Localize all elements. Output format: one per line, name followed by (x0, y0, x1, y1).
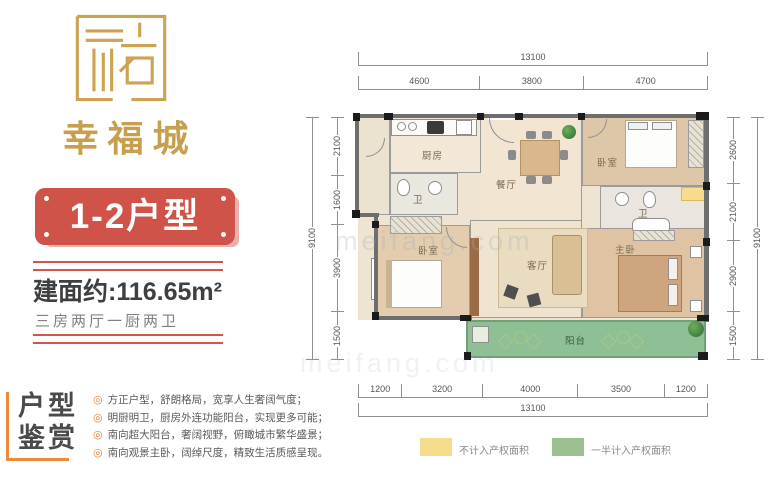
list-item: ◎ 南向观景主卧，阔绰尺度，精致生活质感呈现。 (93, 445, 328, 463)
list-item: ◎ 南向超大阳台，奢阔视野，俯瞰城市繁华盛景； (93, 427, 328, 445)
dim-right-segments: 2600 2100 2900 1500 (727, 117, 740, 360)
brand-logo-icon (66, 6, 176, 110)
chair-icon (508, 150, 516, 160)
banner-dot (221, 196, 226, 201)
promo-sheet: 幸福城 1-2户型 建面约:116.65m² 三房两厅一厨两卫 户型 鉴赏 ◎ … (0, 0, 770, 500)
dim-left-total: 9100 (306, 117, 319, 360)
wall-bottom-left (374, 316, 472, 320)
wall-right (704, 114, 709, 322)
wall-block (460, 315, 471, 321)
nightstand-icon (690, 300, 702, 312)
label-bath-2: 卫 (638, 206, 649, 220)
stove-icon (427, 121, 444, 134)
banner-dot (221, 232, 226, 237)
banner-dot (44, 232, 49, 237)
unit-type-banner: 1-2户型 (35, 188, 235, 245)
label-living: 客厅 (527, 258, 548, 272)
wall-block (698, 352, 708, 360)
red-divider (33, 261, 223, 271)
legend-label-half-counted: 一半计入产权面积 (591, 442, 671, 457)
washbasin-icon (428, 181, 442, 195)
wall-block (697, 315, 709, 321)
unit-type-label: 1-2户型 (35, 188, 235, 245)
watermark: meifang.com (300, 348, 499, 379)
kitchen-sink-icon (397, 122, 406, 131)
wardrobe-bedroom-1 (688, 120, 704, 168)
wall-block (703, 238, 710, 246)
legend-swatch-not-counted (420, 438, 452, 456)
wall-top (356, 114, 708, 118)
label-kitchen: 厨房 (422, 148, 443, 162)
label-dining: 餐厅 (496, 177, 517, 191)
dim-bottom-total: 13100 (358, 403, 708, 417)
label-bedroom-1: 卧室 (597, 155, 618, 169)
chair-icon (542, 176, 552, 184)
washbasin-icon (615, 192, 629, 206)
watermark: meifang.com (335, 226, 534, 257)
plant-icon (562, 125, 576, 139)
balcony-decor (514, 331, 527, 344)
toilet-icon (397, 179, 410, 196)
bed-bedroom-2 (386, 260, 442, 308)
legend-swatch-half-counted (552, 438, 584, 456)
dim-bottom-segments: 1200 3200 4000 3500 1200 (358, 384, 708, 398)
layout-summary: 三房两厅一厨两卫 (35, 310, 179, 331)
wardrobe-master (633, 230, 675, 241)
wall-block (696, 112, 709, 120)
appreciation-list: ◎ 方正户型，舒朗格局，宽享人生奢阔气度； ◎ 明厨明卫，厨房外连功能阳台，实现… (93, 392, 328, 462)
balcony-decor (617, 331, 630, 344)
list-item: ◎ 明厨明卫，厨房外连功能阳台，实现更多可能； (93, 410, 328, 428)
dim-right-total: 9100 (751, 117, 764, 360)
bullet-icon: ◎ (93, 445, 103, 463)
wall-block (578, 113, 585, 120)
washing-machine-icon (472, 326, 489, 343)
brand-name: 幸福城 (30, 110, 230, 162)
chair-icon (526, 131, 536, 139)
wall-block (477, 113, 484, 120)
bullet-icon: ◎ (93, 410, 103, 428)
bullet-icon: ◎ (93, 427, 103, 445)
banner-dot (44, 196, 49, 201)
fridge-icon (456, 120, 472, 135)
chair-icon (542, 131, 552, 139)
dim-top-total: 13100 (358, 52, 708, 66)
pillow-icon (652, 122, 672, 130)
wall-block (384, 113, 393, 120)
plant-icon (688, 321, 704, 337)
wall-block (353, 113, 360, 121)
wall-block (703, 182, 710, 190)
kitchen-sink-icon (408, 122, 417, 131)
red-divider (33, 334, 223, 344)
pillow-icon (628, 122, 648, 130)
chair-icon (560, 150, 568, 160)
wall-block (352, 210, 360, 218)
dining-table (520, 140, 560, 176)
wall-left-upper (355, 114, 359, 217)
bullet-icon: ◎ (93, 392, 103, 410)
appreciation-title: 户型 鉴赏 (18, 390, 78, 454)
wall-block (372, 312, 379, 320)
pillow-icon (668, 284, 678, 306)
sofa (552, 235, 582, 295)
chair-icon (526, 176, 536, 184)
label-master: 主卧 (615, 242, 636, 256)
pillow-icon (668, 258, 678, 280)
dim-top-segments: 4600 3800 4700 (358, 76, 708, 90)
headboard (386, 260, 392, 308)
legend-label-not-counted: 不计入产权面积 (459, 442, 529, 457)
room-utility-balcony (358, 117, 390, 215)
wall-block (515, 113, 523, 120)
label-balcony: 阳台 (565, 333, 586, 347)
nightstand-icon (690, 246, 702, 258)
built-area: 建面约:116.65m² (33, 272, 222, 308)
list-item: ◎ 方正户型，舒朗格局，宽享人生奢阔气度； (93, 392, 328, 410)
label-bath-1: 卫 (413, 192, 424, 206)
